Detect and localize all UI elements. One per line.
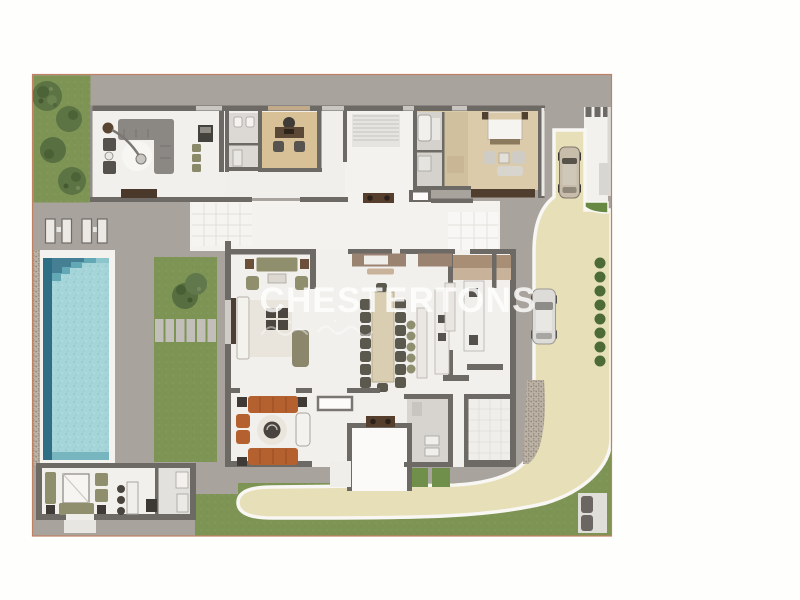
svg-text:CHESTERTONS: CHESTERTONS [259,281,536,320]
